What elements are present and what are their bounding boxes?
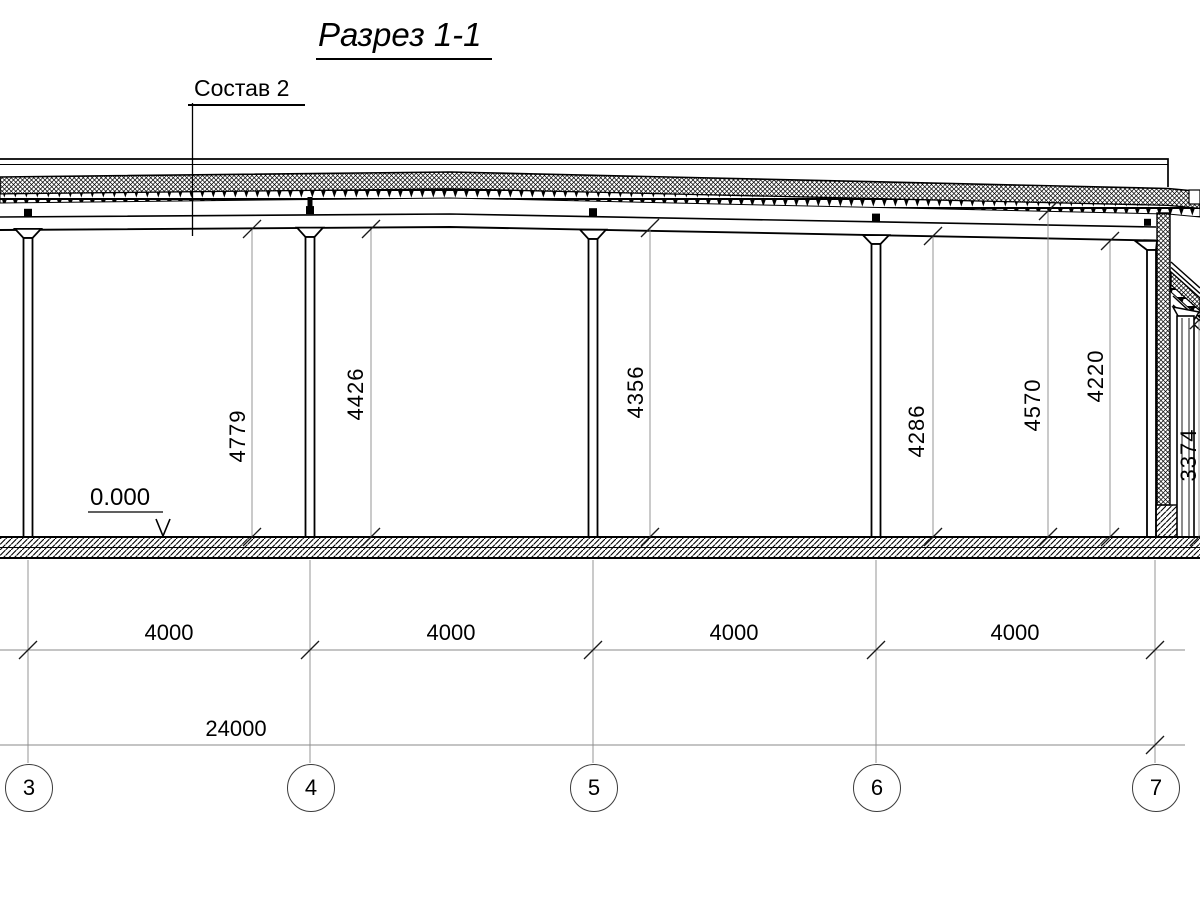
total-dim-label: 24000 <box>176 716 296 742</box>
vertical-dim-label-2: 4426 <box>342 344 370 444</box>
vertical-dimension-lines <box>252 211 1199 537</box>
column-axis-5 <box>580 230 606 537</box>
vertical-dim-label-1: 4779 <box>224 386 252 486</box>
vertical-dim-label-4: 4286 <box>903 381 931 481</box>
bay-dim-label-4: 4000 <box>955 620 1075 646</box>
vertical-dim-label-6: 4220 <box>1082 326 1110 426</box>
level-mark-arrow <box>88 512 170 536</box>
vertical-dim-label-5: 4570 <box>1019 355 1047 455</box>
grid-bubble-7: 7 <box>1132 764 1180 812</box>
grid-bubble-4: 4 <box>287 764 335 812</box>
grid-axis-number: 5 <box>588 775 600 801</box>
grid-bubble-6: 6 <box>853 764 901 812</box>
roof-beam <box>0 214 1156 241</box>
vertical-dim-label-7: 3374 <box>1175 405 1200 505</box>
composition-label: Состав 2 <box>188 75 305 106</box>
grid-bubble-5: 5 <box>570 764 618 812</box>
grid-axis-number: 7 <box>1150 775 1162 801</box>
drawing-title: Разрез 1-1 <box>316 16 492 60</box>
column-axis-4 <box>297 228 323 537</box>
grid-bubble-3: 3 <box>5 764 53 812</box>
column-axis-7 <box>1135 241 1157 537</box>
grid-axis-number: 4 <box>305 775 317 801</box>
bay-dim-label-3: 4000 <box>674 620 794 646</box>
bay-dim-label-1: 4000 <box>109 620 229 646</box>
grid-axis-number: 6 <box>871 775 883 801</box>
drawing-sheet: Разрез 1-1 Состав 2 0.000 4779 4426 4356… <box>0 0 1200 900</box>
column-axis-6 <box>863 235 889 537</box>
columns <box>15 228 1157 537</box>
vertical-dim-ticks <box>243 202 1200 546</box>
vertical-dim-label-3: 4356 <box>622 342 650 442</box>
grid-axis-number: 3 <box>23 775 35 801</box>
floor-slab <box>0 537 1200 558</box>
column-axis-3 <box>15 229 41 537</box>
level-mark-label: 0.000 <box>90 484 150 512</box>
bay-dim-label-2: 4000 <box>391 620 511 646</box>
